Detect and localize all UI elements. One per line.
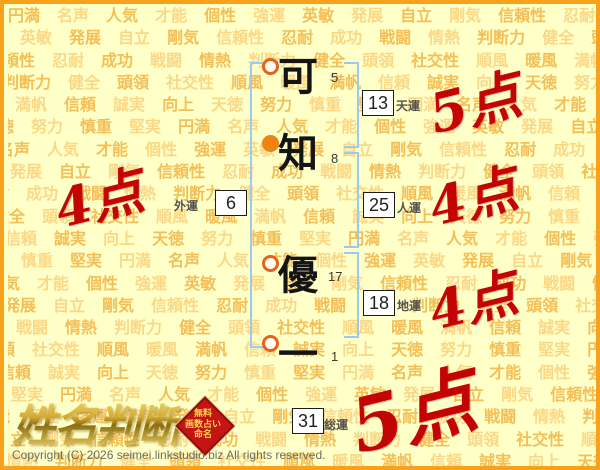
name-char-2: 知 [278, 121, 318, 179]
heaven-luck-bracket [344, 62, 359, 148]
person-luck-bracket [344, 152, 359, 248]
total-luck-label: 総運 [324, 416, 348, 433]
stroke-count-4: 1 [331, 349, 338, 364]
char-marker-2[interactable] [262, 135, 279, 152]
char-marker-3[interactable] [262, 255, 279, 272]
outer-luck-bracket [250, 62, 265, 348]
stroke-count-1: 5 [331, 70, 338, 85]
outer-luck-label: 外運 [174, 197, 198, 214]
site-logo[interactable]: 姓名判断 [12, 390, 180, 454]
earth-luck-value: 18 [363, 290, 395, 316]
name-char-1: 可 [278, 44, 318, 102]
copyright-text: Copyright (C) 2026 seimei.linkstudio.biz… [12, 448, 325, 462]
person-luck-label: 人運 [397, 199, 421, 216]
heaven-luck-value: 13 [362, 90, 394, 116]
badge-text: 無料 画数占い 命名 [174, 397, 232, 451]
name-char-4: 一 [278, 322, 318, 380]
char-marker-4[interactable] [262, 335, 279, 352]
stroke-count-2: 8 [331, 151, 338, 166]
total-luck-value: 31 [292, 408, 324, 434]
stroke-count-3: 17 [328, 269, 342, 284]
badge-line-1: 無料 [194, 408, 212, 419]
outer-luck-value: 6 [215, 190, 247, 216]
earth-luck-label: 地運 [397, 297, 421, 314]
heaven-luck-label: 天運 [396, 97, 420, 114]
person-luck-value: 25 [363, 192, 395, 218]
fortune-result-page: 円満名声人気才能個性強運英敏発展自立剛気信頼性忍耐成功戦闘強運英敏発展自立剛気信… [0, 0, 600, 470]
name-char-3: 優 [278, 243, 318, 301]
free-kakusuuranai-badge: 無料 画数占い 命名 [174, 397, 232, 451]
badge-line-3: 命名 [194, 429, 212, 440]
char-marker-1[interactable] [262, 58, 279, 75]
earth-luck-bracket [344, 252, 359, 338]
badge-line-2: 画数占い [185, 419, 221, 430]
